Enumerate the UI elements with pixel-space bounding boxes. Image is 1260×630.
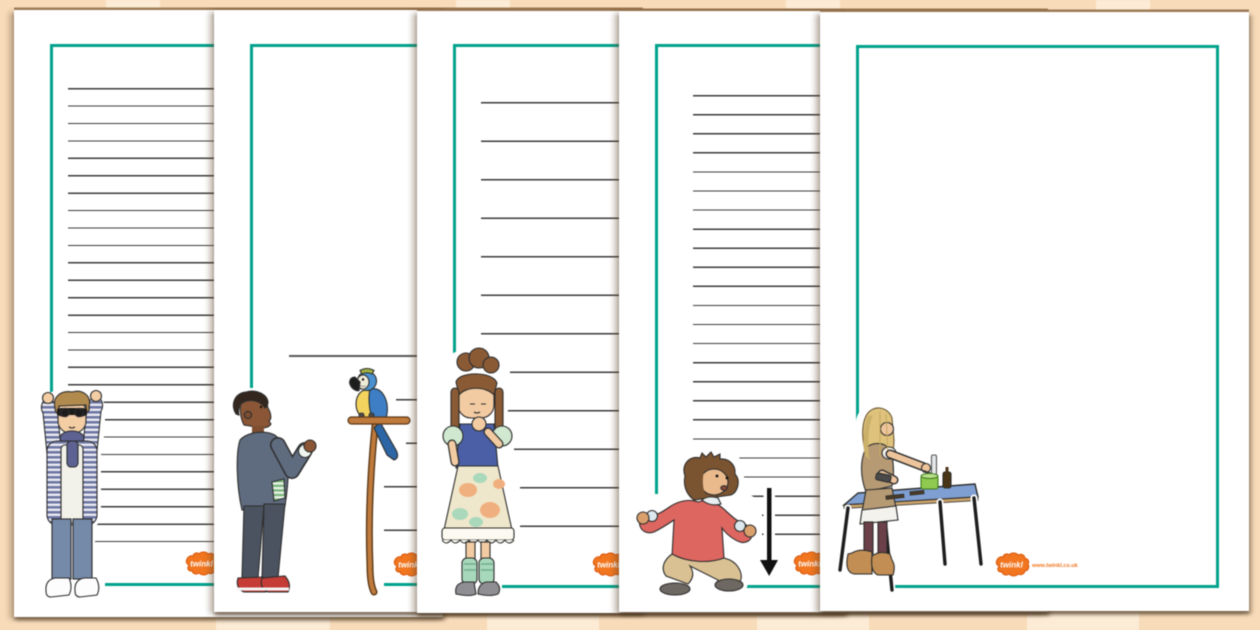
- svg-text:twinkl: twinkl: [190, 560, 213, 569]
- svg-text:twinkl: twinkl: [1000, 561, 1023, 570]
- svg-text:twinkl: twinkl: [597, 561, 620, 570]
- svg-text:twinkl: twinkl: [798, 560, 821, 569]
